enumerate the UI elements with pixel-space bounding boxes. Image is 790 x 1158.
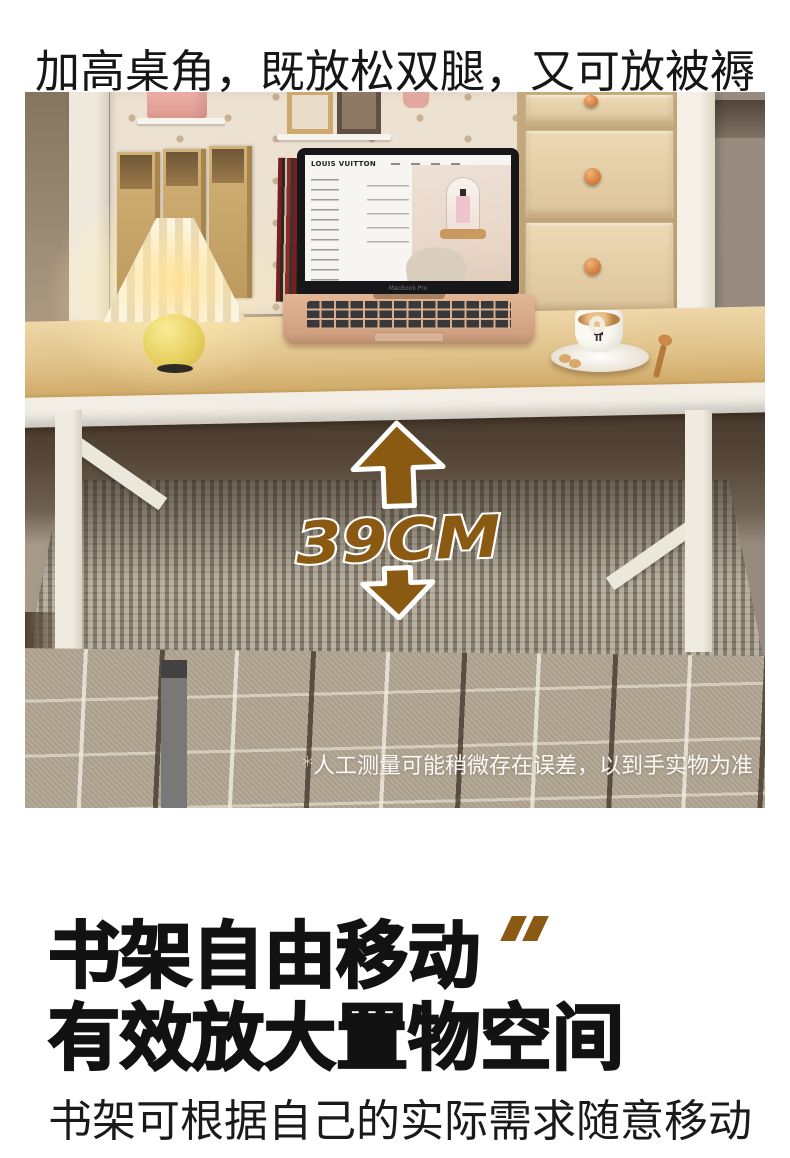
- wall-decor: [403, 92, 429, 108]
- coffee-cup-set: [545, 302, 685, 382]
- perfume-bottle: [456, 196, 470, 223]
- quote-mark-icon: [506, 916, 543, 941]
- picture-frame: [337, 92, 381, 134]
- quote-bar: [522, 916, 549, 941]
- drawer-knob: [584, 95, 598, 107]
- laptop-screen: LOUIS VUITTON MacBook Pro: [297, 148, 519, 294]
- laptop-screen-product-image: [412, 165, 511, 281]
- laptop-trackpad: [374, 332, 444, 342]
- desk-leg-left: [55, 410, 82, 672]
- wall-shelf: [277, 134, 391, 140]
- storage-box-pink: [147, 92, 207, 118]
- blanket: [25, 648, 765, 808]
- glass-dome: [446, 177, 480, 231]
- lamp-foot: [157, 364, 193, 373]
- laptop-body: [283, 294, 535, 344]
- laptop-screen-text-lines: [367, 185, 409, 249]
- drawer-cabinet: [517, 92, 679, 314]
- cup-handle: [589, 316, 605, 334]
- product-detail-page: 加高桌角，既放松双腿，又可放被褥: [0, 0, 790, 1158]
- lamp-base: [143, 314, 205, 370]
- drawer-knob: [584, 258, 601, 275]
- laptop-model-label: MacBook Pro: [297, 285, 519, 292]
- laptop-screen-content: LOUIS VUITTON: [305, 155, 511, 281]
- disclaimer-note: *人工测量可能稍微存在误差，以到手实物为准: [302, 748, 753, 780]
- table-lamp: [95, 212, 255, 377]
- headline-primary: 书架自由移动: [48, 916, 480, 996]
- wall-shadow-band: [713, 100, 765, 138]
- decor-rock: [403, 243, 468, 281]
- laptop-hinge: [373, 294, 445, 299]
- desk-leg-right: [685, 410, 712, 652]
- drawer: [525, 94, 674, 126]
- laptop-screen-brand-text: LOUIS VUITTON: [311, 160, 376, 168]
- laptop-keyboard: [307, 301, 511, 329]
- laptop-screen-menu-lines: [311, 179, 339, 281]
- picture-frame: [287, 92, 333, 134]
- lamp-shade: [103, 218, 247, 322]
- drawer: [525, 222, 674, 312]
- teaspoon: [653, 344, 667, 378]
- up-arrow-icon: [352, 421, 445, 507]
- drawer-knob: [584, 168, 601, 185]
- wall-shelf: [137, 118, 225, 124]
- laptop: LOUIS VUITTON MacBook Pro: [283, 148, 535, 350]
- subheadline: 书架可根据自己的实际需求随意移动: [48, 1096, 752, 1148]
- drawer: [525, 130, 674, 218]
- dome-base: [440, 229, 486, 239]
- biscuit: [569, 359, 581, 368]
- storage-box-gray: [161, 660, 187, 808]
- measurement-callout: 39CM: [280, 420, 516, 620]
- headline-secondary: 有效放大置物空间: [48, 998, 624, 1078]
- product-photo: LOUIS VUITTON MacBook Pro: [25, 92, 765, 808]
